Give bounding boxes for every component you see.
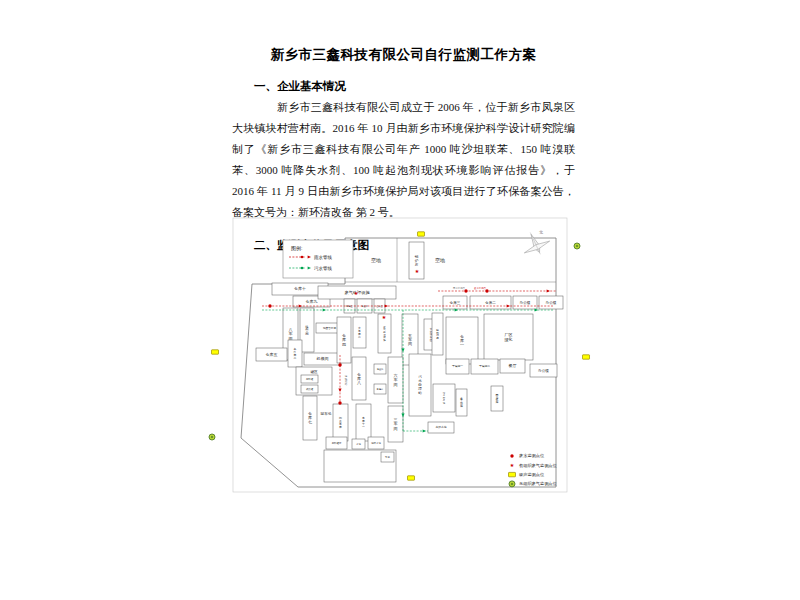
- building-label: 危废暂存间: [323, 326, 336, 330]
- building-label: 固废库: [496, 393, 499, 403]
- stack-gas-point-icon: ★: [415, 268, 420, 274]
- compass-rose-icon: 北: [518, 227, 554, 261]
- wastewater-point-icon: [268, 304, 271, 307]
- marker-legend-label: 无组织废气监测点位: [519, 481, 558, 486]
- stack-gas-point-icon: ★: [510, 462, 515, 468]
- noise-point-icon: [583, 355, 590, 359]
- building-label: 办公楼: [520, 300, 531, 305]
- area-label: 运输道路: [345, 374, 348, 386]
- building-label: 三车间: [394, 417, 398, 432]
- building-label: 仓库八: [357, 372, 361, 386]
- building-label: 备件库: [460, 397, 463, 407]
- building-label: 六车间: [394, 373, 398, 388]
- stack-gas-point-icon: ★: [354, 290, 359, 296]
- pipe-legend-label: 雨水管线: [314, 254, 333, 260]
- building-label: 干燥间二: [479, 364, 490, 368]
- building-label: 仓库一: [460, 334, 464, 348]
- building-label: 办公楼: [538, 368, 549, 373]
- building-label: 泵房: [385, 455, 390, 459]
- building-label: 水池: [356, 443, 361, 446]
- building-label: 餐厅: [509, 363, 517, 368]
- building-label: 仓库四: [342, 333, 346, 347]
- building-label: 八车间: [289, 327, 293, 342]
- document-page: 新乡市三鑫科技有限公司自行监测工作方案 一、企业基本情况 新乡市三鑫科技有限公司…: [0, 0, 800, 600]
- wastewater-point-icon: [510, 454, 513, 457]
- area-label: 罐区: [310, 370, 318, 374]
- building-label: 厂区绿化: [505, 332, 513, 342]
- building-label: 大仓库二: [358, 326, 361, 339]
- section1-paragraph: 新乡市三鑫科技有限公司成立于 2006 年，位于新乡市凤泉区大块镇块村营村南。2…: [232, 97, 575, 223]
- building-label: 仓库九: [306, 299, 318, 304]
- marker-legend-label: 噪声监测点位: [519, 472, 545, 477]
- plant-layout-diagram: 锅炉房仓库十仓库九八车间接合间危废暂存间仓库五条件库二机修间原料罐成品罐仓库七闲…: [200, 212, 605, 504]
- fugitive-gas-point-icon: [511, 483, 513, 485]
- noise-point-icon: [212, 350, 219, 354]
- building-label: 锅炉房: [414, 254, 419, 267]
- pipe-arrow-icon: [385, 304, 388, 307]
- outfall-note: 雨水监测点: [453, 286, 466, 290]
- building-label: 事故水池: [435, 425, 446, 429]
- building-label: 仓库十: [294, 286, 306, 291]
- building-label: 仓库七: [308, 411, 312, 425]
- pipe-arrow-icon: [547, 289, 550, 292]
- building-label: 原料罐: [306, 378, 314, 381]
- stack-gas-point-icon: ★: [382, 314, 387, 320]
- pipe-legend-label: 污水管线: [314, 265, 333, 271]
- building-label: 办公楼: [546, 300, 557, 305]
- building-label: 辅助用房: [436, 328, 439, 340]
- building-label: 成品罐: [306, 388, 314, 391]
- fugitive-gas-point-icon: [211, 436, 213, 438]
- monitoring-points-figure: 锅炉房仓库十仓库九八车间接合间危废暂存间仓库五条件库二机修间原料罐成品罐仓库七闲…: [200, 212, 605, 504]
- building-label: 仓库十一: [362, 416, 365, 429]
- pipe-legend-dot: [301, 267, 304, 270]
- building-label: 原料罐区: [332, 442, 342, 445]
- compass-north-label: 北: [539, 230, 543, 235]
- building-label: 干燥间一: [452, 364, 463, 368]
- pipe-arrow-icon: [323, 308, 326, 311]
- building-label: 仓库五: [266, 352, 278, 357]
- noise-point-icon: [408, 476, 415, 480]
- pipe-arrow-icon: [423, 429, 426, 432]
- building-label: 仓库二: [485, 300, 496, 305]
- marker-legend-label: 废水监测点位: [519, 453, 545, 458]
- noise-point-icon: [509, 472, 516, 476]
- building-label: 条件库二: [294, 347, 297, 360]
- building-label: 仓库三: [450, 300, 461, 305]
- building-label: 污水处理站: [418, 375, 422, 395]
- wastewater-point-icon: [338, 401, 341, 404]
- outfall-note: 废水监测点: [474, 286, 487, 290]
- area-label: 空地: [435, 257, 445, 263]
- building-label: 闲置仓库: [339, 416, 342, 429]
- wastewater-point-icon: [338, 363, 341, 366]
- page-title: 新乡市三鑫科技有限公司自行监测工作方案: [232, 46, 575, 64]
- pipe-legend-title: 图例:: [291, 245, 302, 252]
- area-label: 回车场: [321, 411, 332, 416]
- fugitive-gas-point-icon: [576, 245, 578, 247]
- building-label: 循环水池: [371, 442, 381, 445]
- section1-heading: 一、企业基本情况: [254, 79, 575, 94]
- noise-point-icon: [418, 232, 425, 236]
- pipe-arrow-icon: [338, 389, 341, 392]
- building-label: 五车间: [408, 333, 412, 348]
- area-label: 空地: [371, 257, 381, 263]
- pipe-legend-dot: [301, 256, 304, 259]
- marker-legend-label: 有组织废气监测点位: [519, 463, 558, 468]
